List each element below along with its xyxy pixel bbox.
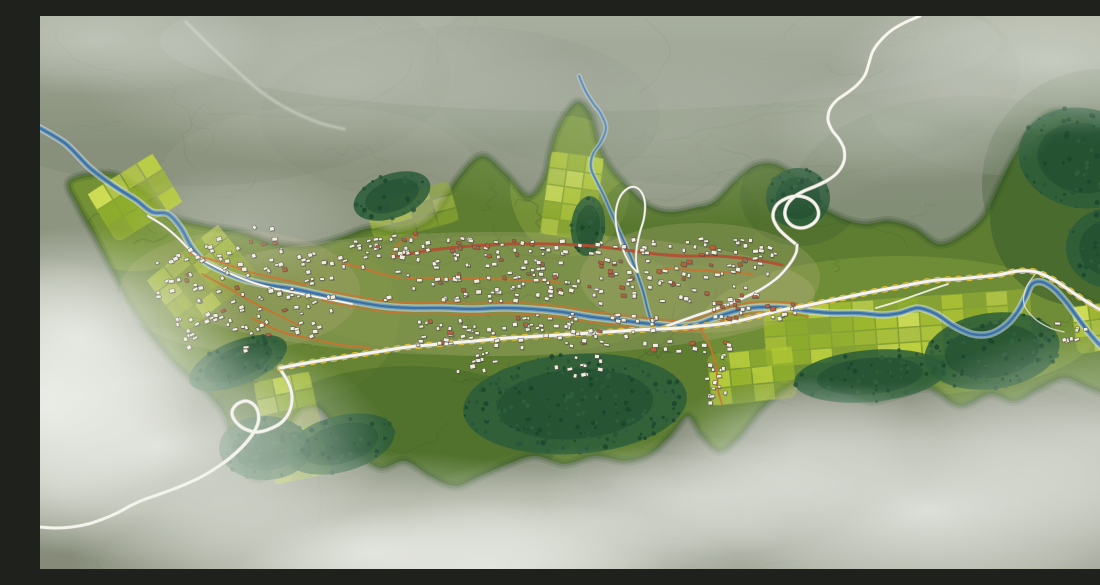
map-canvas xyxy=(40,16,1100,569)
aerial-masterplan-map xyxy=(40,16,1100,569)
